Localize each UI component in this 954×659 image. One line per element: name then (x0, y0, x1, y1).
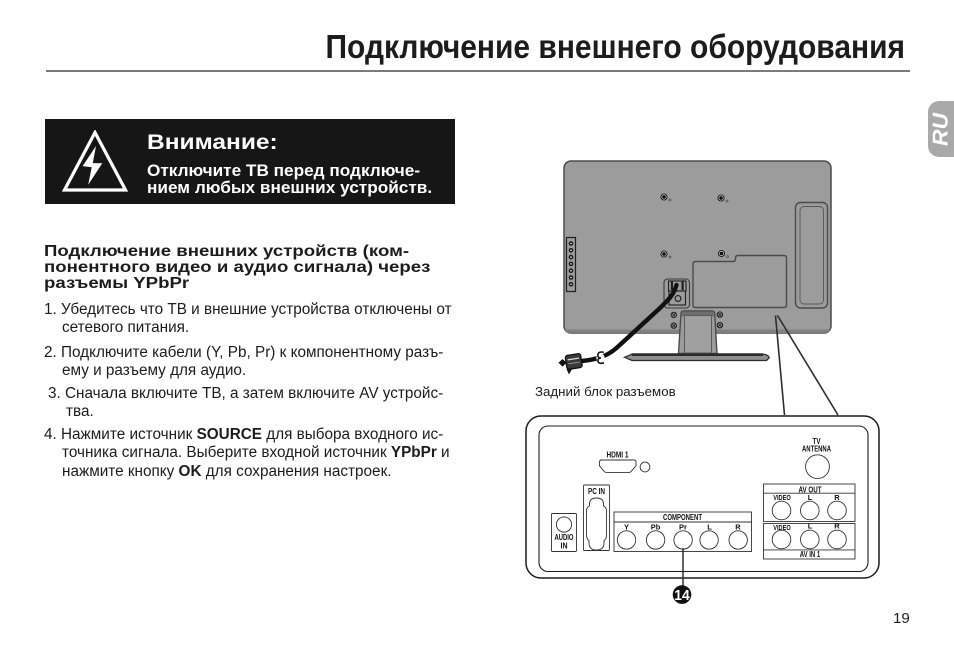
svg-text:ANTENNA: ANTENNA (802, 444, 831, 453)
svg-text:VIDEO: VIDEO (773, 493, 791, 502)
svg-text:Y: Y (624, 522, 629, 531)
svg-text:COMPONENT: COMPONENT (663, 513, 702, 522)
svg-text:R: R (834, 493, 840, 502)
svg-text:HDMI 1: HDMI 1 (607, 451, 629, 460)
svg-text:R: R (735, 522, 741, 531)
svg-text:L: L (808, 493, 813, 502)
svg-text:AUDIO: AUDIO (555, 533, 574, 542)
svg-text:AV IN 1: AV IN 1 (800, 550, 821, 559)
svg-text:RU: RU (929, 113, 953, 146)
svg-text:IN: IN (561, 542, 568, 551)
svg-text:14: 14 (674, 587, 690, 604)
svg-text:Pr: Pr (679, 522, 687, 531)
svg-text:L: L (707, 522, 712, 531)
svg-text:Pb: Pb (651, 522, 661, 531)
svg-text:L: L (808, 522, 813, 531)
svg-text:R: R (834, 522, 840, 531)
svg-text:PC IN: PC IN (588, 487, 605, 496)
